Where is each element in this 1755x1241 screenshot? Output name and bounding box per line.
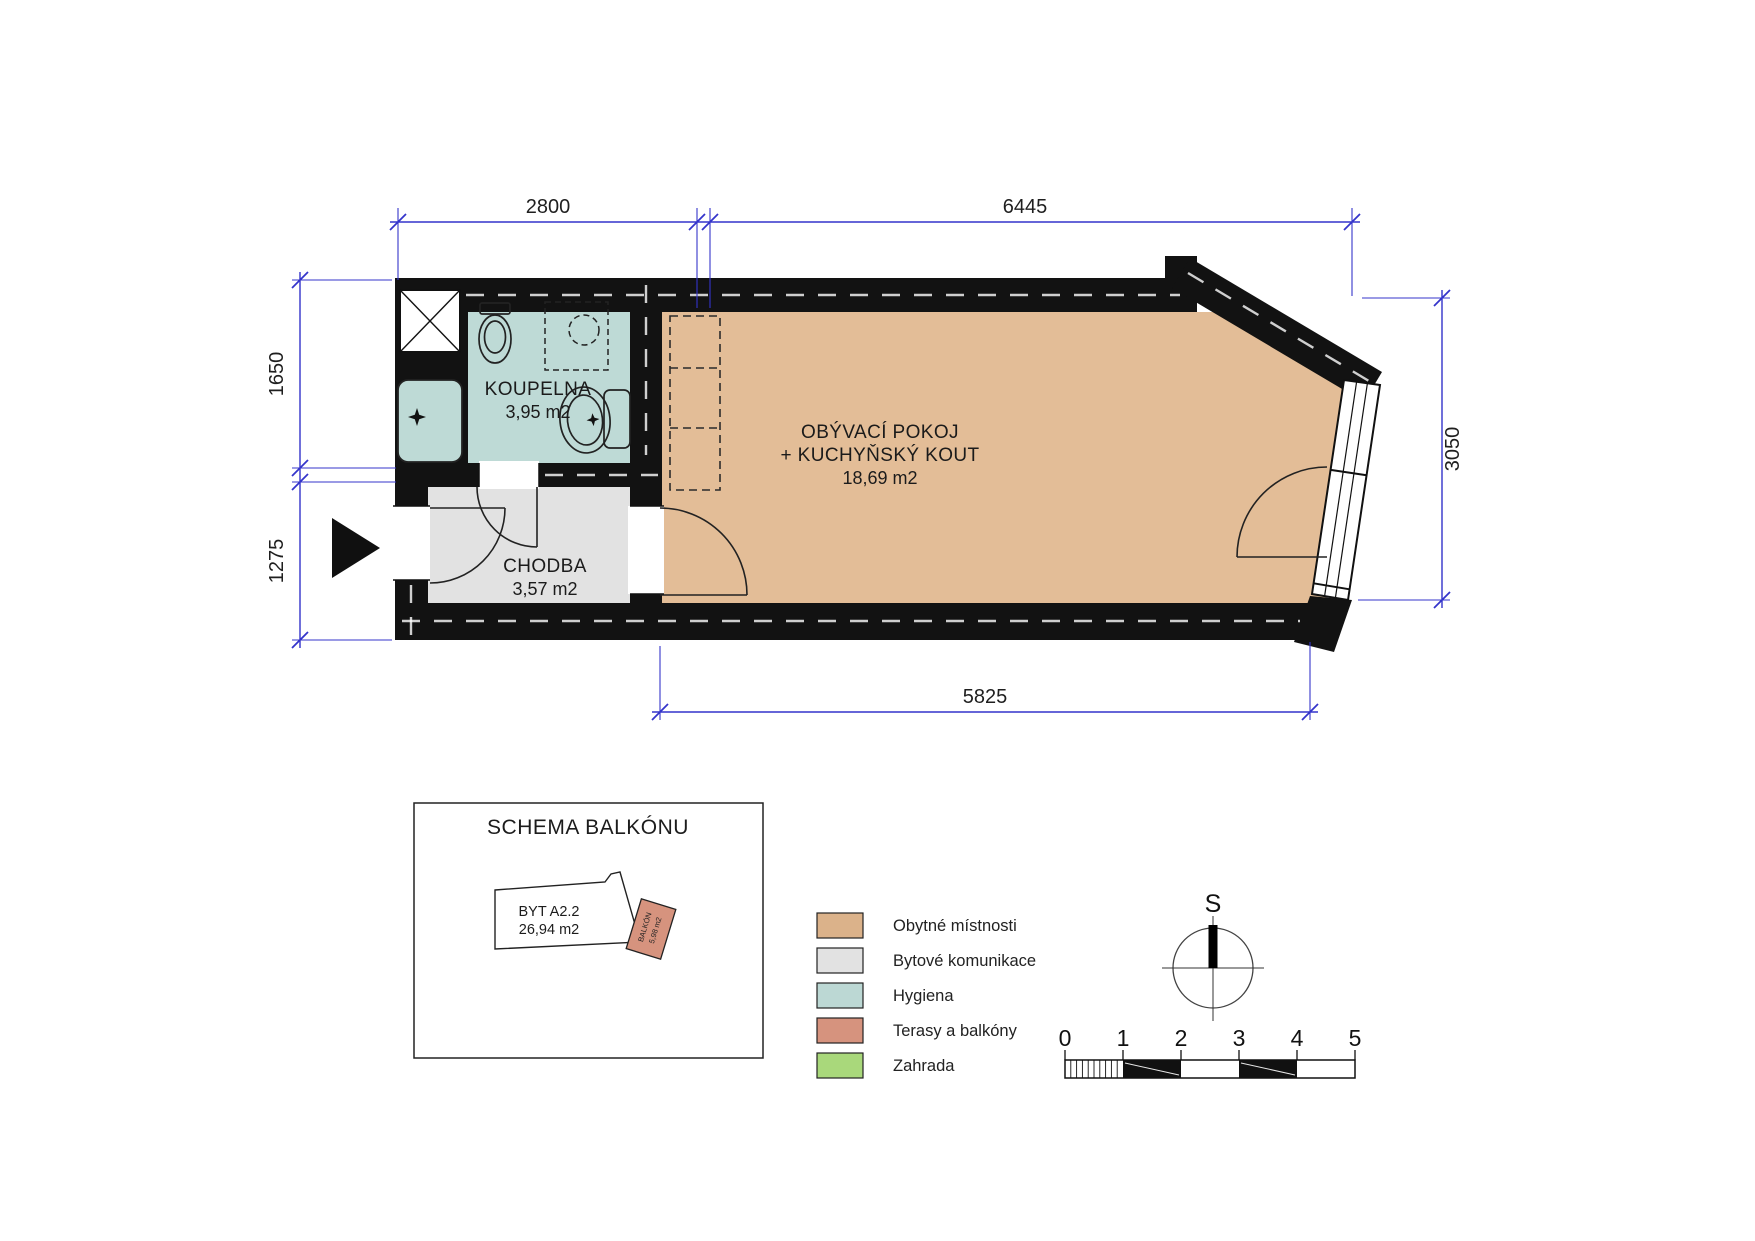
dimension-right: 3050	[1358, 290, 1464, 608]
dim-1650: 1650	[266, 352, 288, 397]
dim-5825: 5825	[963, 686, 1008, 708]
compass: S	[1162, 890, 1264, 1021]
scale-5: 5	[1349, 1025, 1362, 1051]
floor-plan-drawing: KOUPELNA 3,95 m2 CHODBA 3,57 m2 OBÝVACÍ …	[0, 0, 1755, 1241]
scale-3: 3	[1233, 1025, 1246, 1051]
scale-0: 0	[1059, 1025, 1072, 1051]
living-room-label-2: + KUCHYŇSKÝ KOUT	[780, 444, 979, 466]
legend-label-terrace: Terasy a balkóny	[893, 1022, 1018, 1040]
bathroom-area: 3,95 m2	[505, 402, 570, 422]
bathroom-label: KOUPELNA	[485, 379, 592, 400]
hallway-label: CHODBA	[503, 556, 587, 577]
hallway-area: 3,57 m2	[512, 579, 577, 599]
unit-label: BYT A2.2	[519, 904, 580, 920]
dimension-bottom: 5825	[652, 642, 1318, 720]
dim-6445: 6445	[1003, 196, 1048, 218]
living-door-opening	[628, 506, 664, 594]
legend-label-communication: Bytové komunikace	[893, 952, 1036, 970]
unit-area: 26,94 m2	[519, 922, 579, 938]
legend-label-garden: Zahrada	[893, 1057, 955, 1075]
schema-title: SCHEMA BALKÓNU	[487, 816, 689, 839]
scale-bar: 0 1 2 3 4 5	[1059, 1025, 1362, 1078]
legend-label-living: Obytné místnosti	[893, 917, 1017, 935]
legend-swatch-communication	[817, 948, 863, 973]
legend: Obytné místnosti Bytové komunikace Hygie…	[817, 913, 1036, 1078]
balcony-schema-box: SCHEMA BALKÓNU BYT A2.2 26,94 m2 BALKÓN …	[414, 803, 763, 1058]
living-room-label: OBÝVACÍ POKOJ	[801, 422, 959, 443]
dimension-left: 1650 1275	[266, 272, 396, 648]
legend-swatch-hygiene	[817, 983, 863, 1008]
dim-3050: 3050	[1442, 427, 1464, 472]
compass-north-label: S	[1205, 890, 1222, 918]
scale-2: 2	[1175, 1025, 1188, 1051]
legend-swatch-living	[817, 913, 863, 938]
legend-label-hygiene: Hygiena	[893, 987, 954, 1005]
dim-1275: 1275	[266, 539, 288, 584]
bathroom-door-opening	[479, 461, 539, 489]
scale-4: 4	[1291, 1025, 1304, 1051]
entrance-opening	[393, 506, 430, 580]
scale-1: 1	[1117, 1025, 1130, 1051]
entrance-arrow	[332, 518, 380, 578]
shower-tray	[398, 380, 462, 462]
legend-swatch-terrace	[817, 1018, 863, 1043]
dim-2800: 2800	[526, 196, 571, 218]
living-room-floor	[662, 312, 1365, 603]
legend-swatch-garden	[817, 1053, 863, 1078]
living-room-area: 18,69 m2	[842, 468, 917, 488]
installation-shaft	[400, 290, 460, 352]
